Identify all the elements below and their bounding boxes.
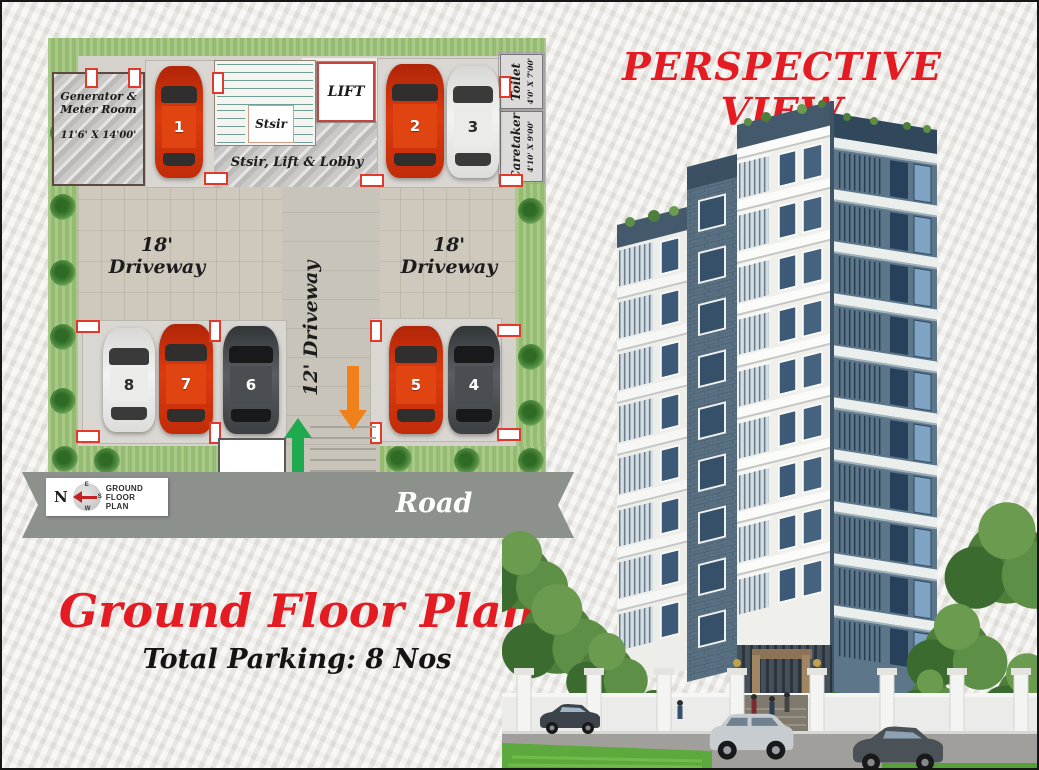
- arrow-down-icon: [339, 410, 367, 430]
- bush-icon: [50, 260, 76, 286]
- parked-car-3: 3: [447, 66, 499, 178]
- compass-e: E: [85, 482, 89, 488]
- wall-marker: [360, 174, 384, 187]
- wall-marker: [212, 72, 224, 94]
- lift: LIFT: [317, 62, 375, 122]
- parked-car-2: 2: [386, 64, 444, 178]
- plan-title: Ground Floor Plan: [57, 584, 537, 638]
- stair-core: Stsir: [248, 105, 294, 143]
- compass-caption: GROUND FLOOR PLAN: [106, 484, 160, 511]
- compass-icon: E S W: [73, 483, 101, 511]
- car-rear-window: [111, 407, 147, 420]
- wall-marker: [76, 320, 100, 333]
- lobby-label: Stsir, Lift & Lobby: [214, 155, 380, 170]
- compass-needle-head: [73, 491, 82, 503]
- wall-marker: [499, 76, 511, 98]
- stair-treads: [217, 63, 313, 105]
- building-illustration: [502, 97, 1039, 770]
- car-rear-window: [397, 409, 435, 422]
- bush-icon: [52, 446, 78, 472]
- generator-meter-room: Generator & Meter Room 11'6' X 14'00': [52, 72, 145, 186]
- parked-car-6: 6: [223, 326, 279, 434]
- car-windshield: [161, 86, 197, 103]
- parking-number: 3: [468, 118, 478, 136]
- driveway-label-left: 18' Driveway: [92, 234, 222, 278]
- parked-car-5: 5: [389, 326, 443, 434]
- parking-number: 5: [411, 376, 421, 394]
- bush-icon: [50, 194, 76, 220]
- car-rear-window: [456, 409, 492, 422]
- wall-marker: [76, 430, 100, 443]
- bush-icon: [386, 446, 412, 472]
- compass-box: N E S W GROUND FLOOR PLAN: [46, 478, 168, 516]
- generator-room-label-line2: Meter Room: [54, 103, 143, 116]
- bush-icon: [94, 448, 120, 474]
- car-windshield: [165, 344, 207, 361]
- bush-icon: [50, 324, 76, 350]
- wall-marker: [370, 320, 382, 342]
- tower-slate-strip: [687, 170, 737, 682]
- car-windshield: [453, 86, 493, 103]
- lift-label: LIFT: [328, 84, 365, 100]
- car-windshield: [229, 346, 273, 363]
- driveway-label-right: 18' Driveway: [384, 234, 514, 278]
- compass-w: W: [85, 506, 91, 512]
- driveway-label-center: 12' Driveway: [300, 276, 324, 396]
- staircase: Stsir: [214, 60, 316, 146]
- brochure-page: Generator & Meter Room 11'6' X 14'00' St…: [0, 0, 1039, 770]
- parking-number: 6: [246, 376, 256, 394]
- car-rear-window: [167, 409, 205, 422]
- generator-room-label-line1: Generator &: [54, 90, 143, 103]
- parked-car-4: 4: [448, 326, 500, 434]
- parking-number: 8: [124, 376, 134, 394]
- car-windshield: [454, 346, 494, 363]
- parking-number: 2: [410, 117, 420, 135]
- bush-icon: [454, 448, 480, 474]
- driveway-center-text: 12' Driveway: [300, 261, 322, 396]
- parking-number: 1: [174, 118, 184, 136]
- car-windshield: [109, 348, 149, 365]
- entry-ramp: [310, 426, 376, 472]
- wall-marker: [209, 320, 221, 342]
- parked-car-8: 8: [103, 328, 155, 432]
- wall-marker: [85, 68, 98, 88]
- entrance-porch: [218, 438, 286, 474]
- road-label: Road: [354, 488, 514, 519]
- stair-treads: [217, 107, 245, 143]
- car-rear-window: [231, 409, 271, 422]
- parking-number: 4: [469, 376, 479, 394]
- tower-left-wing: [617, 220, 687, 687]
- car-rear-window: [163, 153, 195, 166]
- car-windshield: [395, 346, 437, 363]
- compass-s: S: [98, 494, 102, 500]
- exit-arrow: [339, 366, 367, 430]
- arrow-up-icon: [284, 418, 312, 438]
- compass-needle: [81, 496, 97, 499]
- wall-marker: [128, 68, 141, 88]
- bush-icon: [50, 388, 76, 414]
- wall-marker: [204, 172, 228, 185]
- generator-room-dims: 11'6' X 14'00': [54, 130, 143, 141]
- parked-car-7: 7: [159, 324, 213, 434]
- parked-car-1: 1: [155, 66, 203, 178]
- compass-n: N: [54, 488, 68, 506]
- car-rear-window: [394, 153, 436, 166]
- parking-number: 7: [181, 375, 191, 393]
- arrow-shaft: [347, 366, 359, 410]
- stair-label: Stsir: [255, 117, 287, 131]
- car-windshield: [392, 84, 438, 101]
- car-rear-window: [455, 153, 491, 166]
- tower-front-face: [737, 125, 832, 709]
- total-parking-label: Total Parking: 8 Nos: [57, 644, 537, 675]
